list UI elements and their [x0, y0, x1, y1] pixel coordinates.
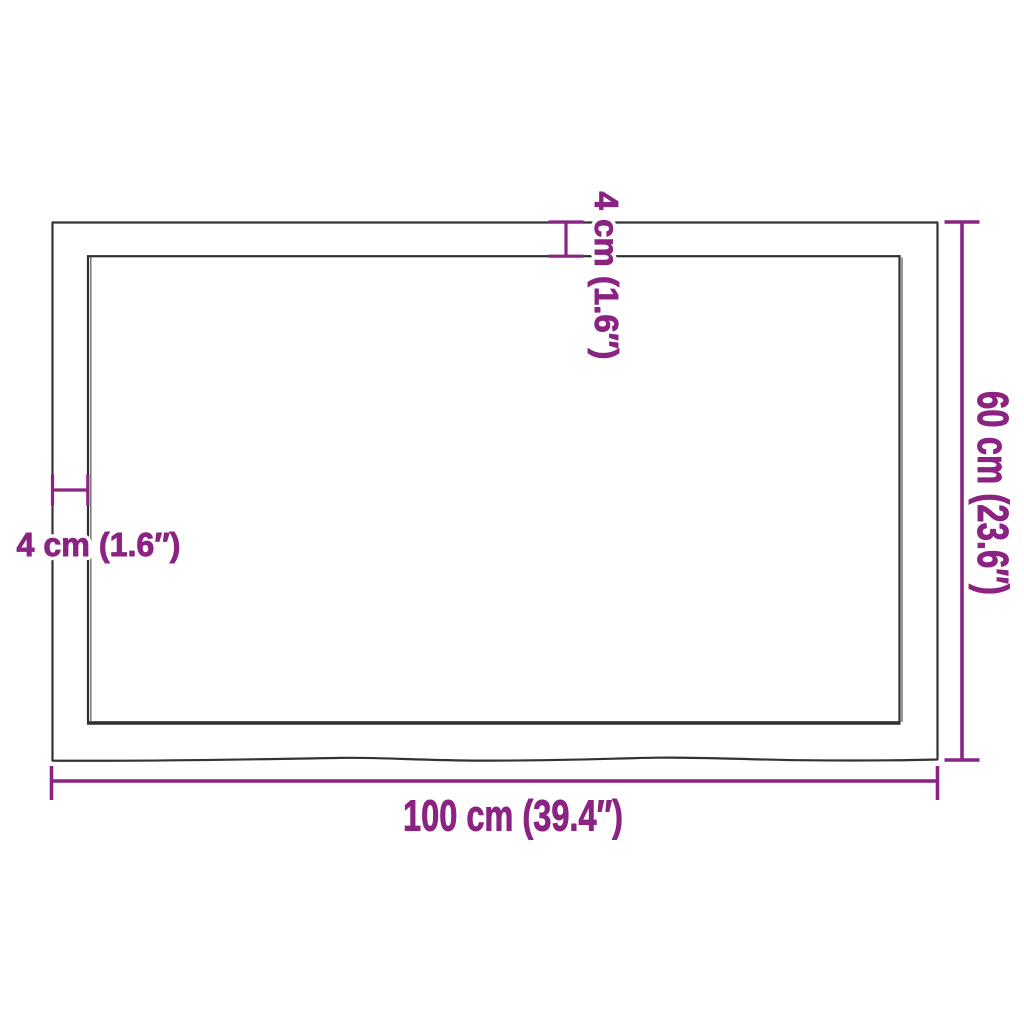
svg-text:4 cm (1.6″): 4 cm (1.6″) [587, 192, 624, 360]
svg-text:4 cm (1.6″): 4 cm (1.6″) [17, 527, 181, 564]
svg-text:60 cm (23.6″): 60 cm (23.6″) [968, 391, 1016, 595]
svg-text:100 cm (39.4″): 100 cm (39.4″) [403, 793, 623, 841]
